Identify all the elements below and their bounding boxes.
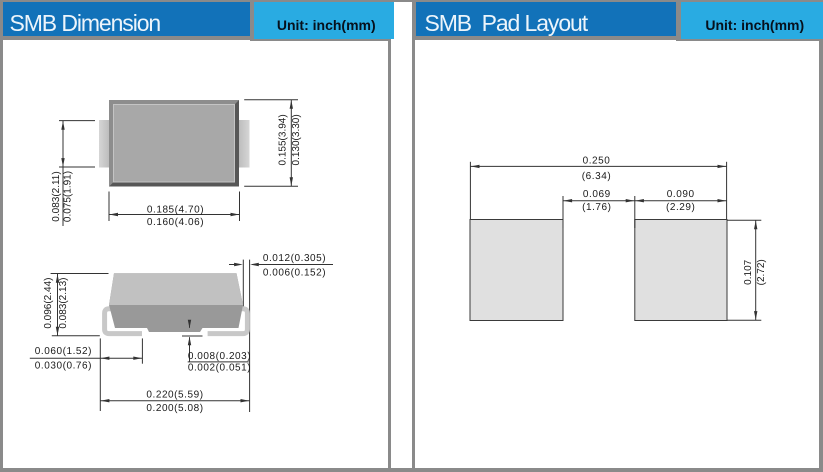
- svg-text:0.107: 0.107: [743, 259, 754, 284]
- svg-text:(2.29): (2.29): [666, 202, 695, 213]
- svg-text:0.090: 0.090: [667, 189, 695, 200]
- svg-text:0.220(5.59): 0.220(5.59): [146, 390, 203, 401]
- svg-text:0.083(2.13): 0.083(2.13): [58, 278, 69, 329]
- svg-text:0.200(5.08): 0.200(5.08): [146, 403, 203, 414]
- svg-text:0.030(0.76): 0.030(0.76): [35, 360, 92, 371]
- svg-text:0.250: 0.250: [583, 155, 611, 166]
- svg-text:(2.72): (2.72): [756, 259, 767, 285]
- svg-text:0.012(0.305): 0.012(0.305): [263, 253, 326, 264]
- svg-text:0.185(4.70): 0.185(4.70): [147, 204, 204, 215]
- svg-text:(1.76): (1.76): [582, 202, 611, 213]
- svg-text:0.069: 0.069: [583, 189, 611, 200]
- svg-text:0.160(4.06): 0.160(4.06): [147, 217, 204, 228]
- svg-text:0.155(3.94): 0.155(3.94): [277, 114, 288, 165]
- svg-text:0.075(1.91): 0.075(1.91): [62, 171, 73, 222]
- svg-text:0.060(1.52): 0.060(1.52): [35, 346, 92, 357]
- svg-text:0.130(3.30): 0.130(3.30): [291, 114, 302, 165]
- svg-text:0.096(2.44): 0.096(2.44): [43, 278, 54, 329]
- svg-text:0.002(0.051): 0.002(0.051): [188, 363, 251, 374]
- svg-text:0.008(0.203): 0.008(0.203): [188, 351, 251, 362]
- svg-text:0.083(2.11): 0.083(2.11): [51, 171, 62, 221]
- svg-text:(6.34): (6.34): [582, 171, 611, 182]
- svg-text:0.006(0.152): 0.006(0.152): [263, 267, 326, 278]
